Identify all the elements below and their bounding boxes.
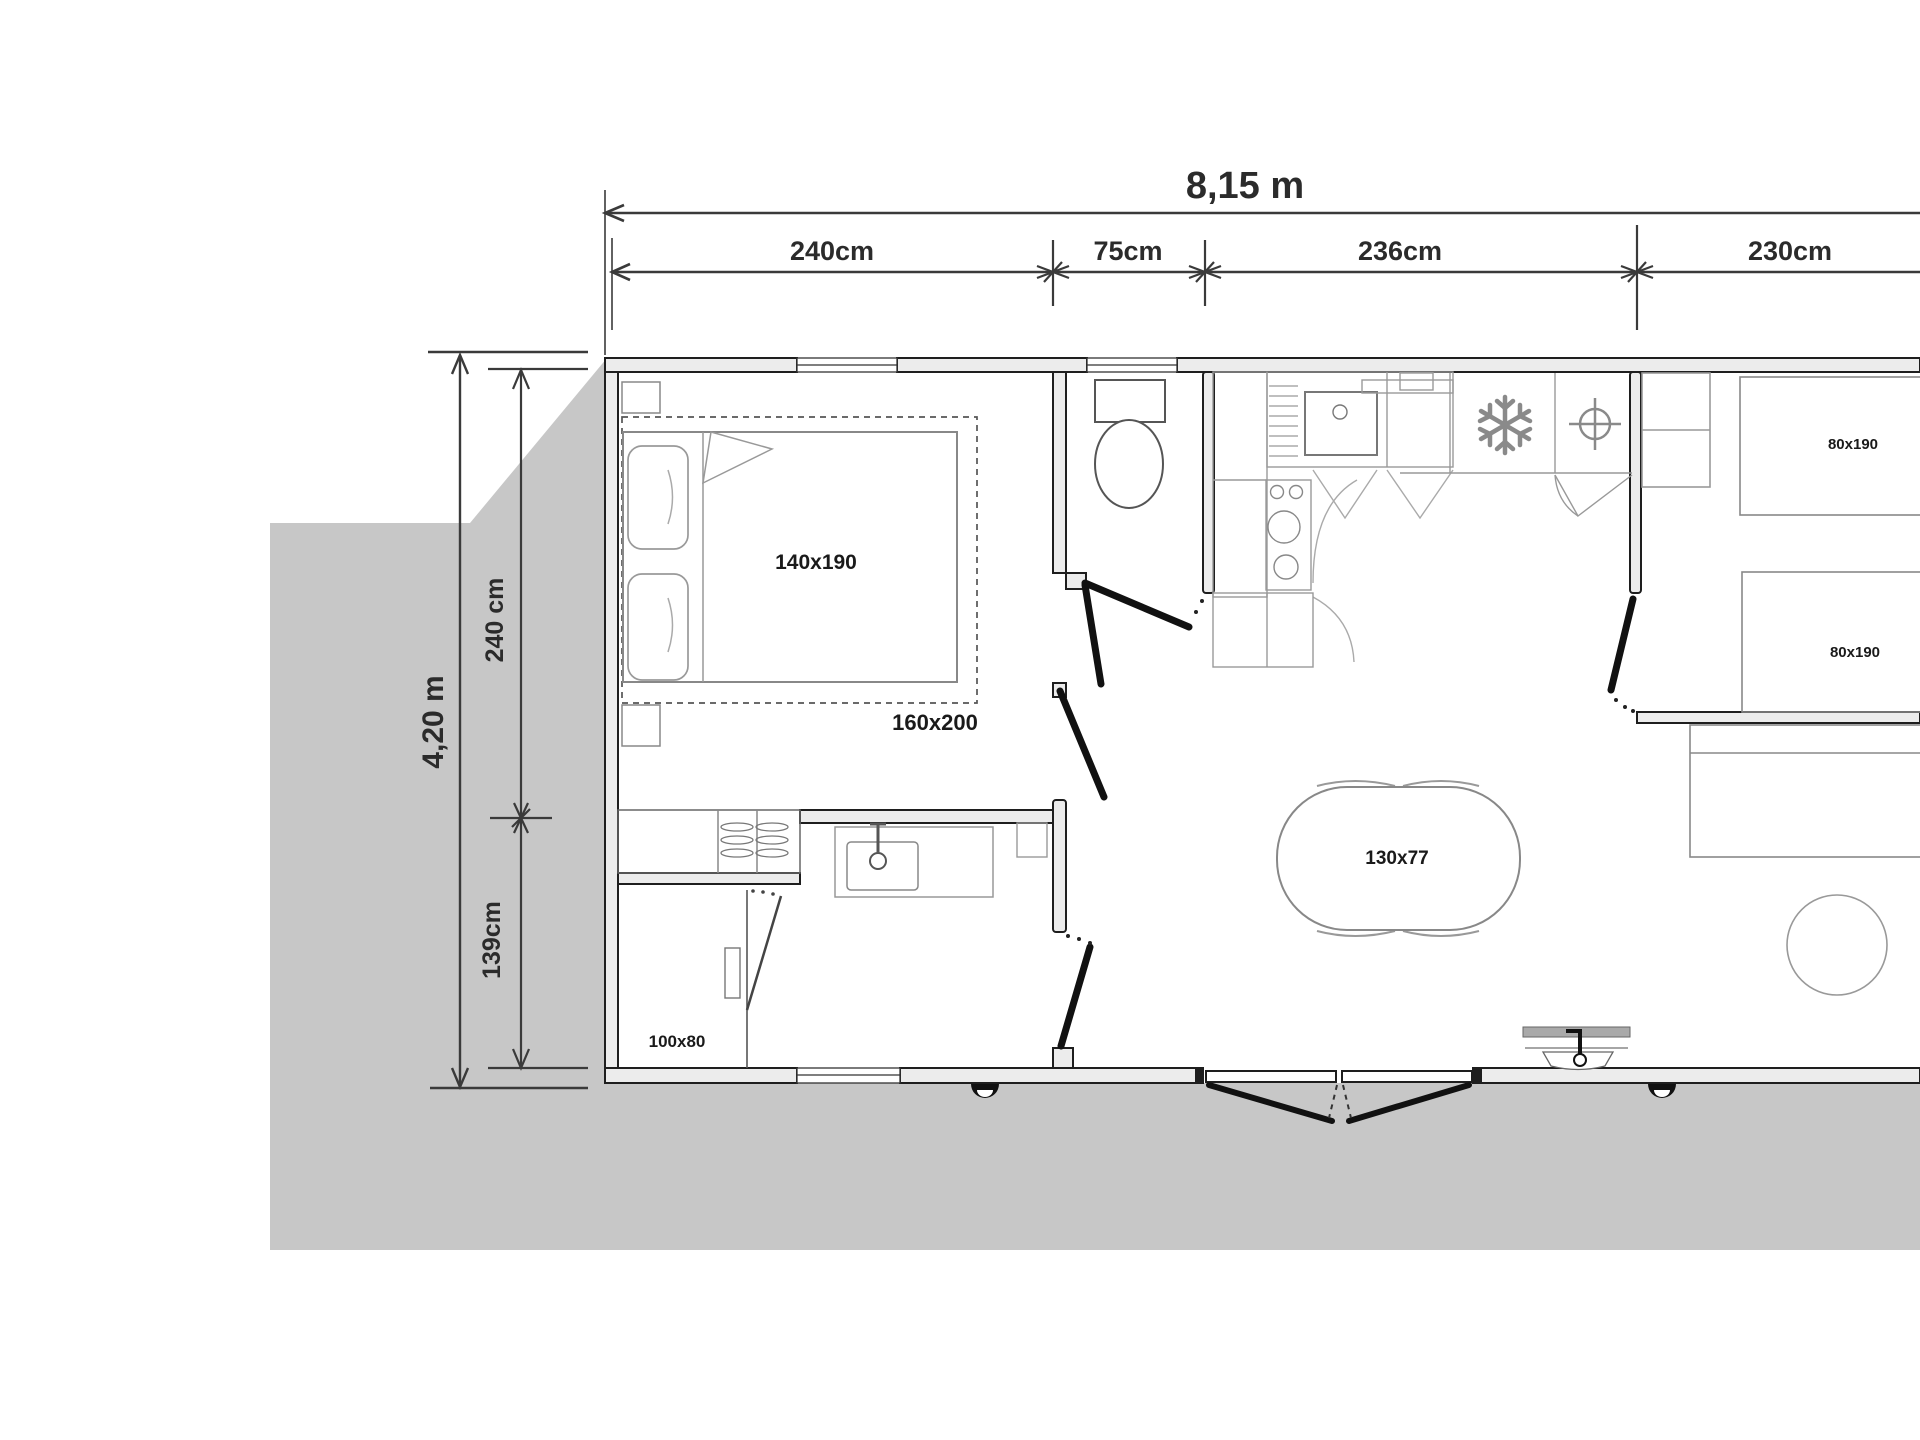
shower-tray-label: 100x80 — [649, 1032, 706, 1051]
wall-top-3 — [1177, 358, 1920, 372]
segment-label-75cm: 75cm — [1093, 236, 1162, 266]
door-jamb-c — [1053, 1048, 1073, 1068]
wall-bedroom-hall-lower — [1053, 800, 1066, 932]
wall-bottom-3 — [1473, 1068, 1920, 1083]
wall-bathroom-top — [800, 810, 1053, 823]
wall-top-1 — [605, 358, 797, 372]
wc-room — [1095, 380, 1165, 508]
twin-bed-1-label: 80x190 — [1828, 436, 1878, 453]
wall-bottom-1 — [605, 1068, 797, 1083]
wall-bedroom2-bottom — [1637, 712, 1920, 723]
wall-shower-top — [618, 873, 800, 884]
segment-label-236cm: 236cm — [1358, 236, 1442, 266]
double-bed-label: 140x190 — [775, 551, 857, 574]
bed-zone-label: 160x200 — [892, 710, 978, 735]
window-wc-top — [1087, 358, 1177, 372]
wall-left — [605, 358, 618, 1083]
window-bedroom-top — [797, 358, 897, 372]
wall-bedroom-hall-upper — [1053, 372, 1066, 573]
segment-label-139cm-left: 139cm — [478, 901, 506, 979]
french-door-panel-right — [1342, 1071, 1472, 1082]
toilet-tank — [1095, 380, 1165, 422]
pillow-bottom — [628, 574, 688, 680]
dining-area: 130x77 — [1277, 781, 1520, 936]
segment-label-230cm: 230cm — [1748, 236, 1832, 266]
wall-top-2 — [897, 358, 1087, 372]
pillow-top — [628, 446, 688, 549]
floor-plan-canvas: 140x190 160x200 100x80 — [0, 0, 1920, 1440]
nightstand-top — [622, 382, 660, 413]
twin-bed-2-label: 80x190 — [1830, 644, 1880, 661]
segment-label-240cm-left: 240 cm — [481, 578, 509, 663]
overall-width-label: 8,15 m — [1186, 165, 1304, 207]
toilet-bowl — [1095, 420, 1163, 508]
floor-plan-page: 140x190 160x200 100x80 — [0, 0, 1920, 1440]
nightstand-bottom — [622, 705, 660, 746]
window-bathroom-bottom — [797, 1068, 900, 1083]
segment-label-240cm: 240cm — [790, 236, 874, 266]
wall-bottom-2 — [900, 1068, 1203, 1083]
wall-living-bedroom2 — [1630, 372, 1641, 593]
french-door-panel-left — [1206, 1071, 1336, 1082]
dining-table-label: 130x77 — [1365, 848, 1428, 869]
overall-depth-label: 4,20 m — [417, 675, 450, 768]
